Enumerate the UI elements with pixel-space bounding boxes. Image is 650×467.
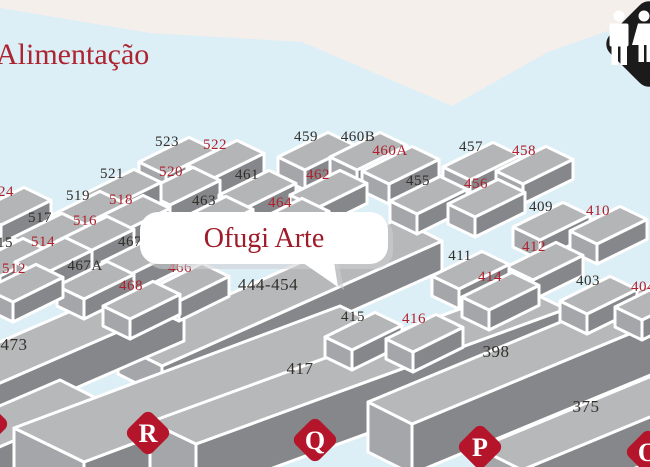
booth-label-520: 520 xyxy=(159,164,183,180)
booth-label-409: 409 xyxy=(529,199,553,215)
block-label-b375: 375 xyxy=(573,397,600,416)
fair-map-canvas: 444-454473417398375459460B52352245745846… xyxy=(0,0,650,467)
aisle-marker-letter: O xyxy=(638,438,650,467)
booth-label-456: 456 xyxy=(464,176,488,192)
booth-label-523: 523 xyxy=(155,134,179,150)
booth-label-516: 516 xyxy=(73,213,97,229)
booth-label-517: 517 xyxy=(28,210,52,226)
booth-label-463: 463 xyxy=(192,193,216,209)
block-label-b417: 417 xyxy=(287,359,314,378)
aisle-marker-letter: R xyxy=(139,419,158,448)
booth-label-521: 521 xyxy=(100,166,124,182)
booth-label-467A: 467A xyxy=(67,258,102,274)
aisle-marker-letter: P xyxy=(472,433,488,462)
booth-label-416: 416 xyxy=(402,311,426,327)
booth-label-457: 457 xyxy=(459,139,483,155)
booth-label-464: 464 xyxy=(268,195,292,211)
booth-label-519: 519 xyxy=(66,188,90,204)
booth-label-455: 455 xyxy=(406,173,430,189)
booth-label-468: 468 xyxy=(119,278,143,294)
booth-label-460B: 460B xyxy=(341,129,376,145)
booth-label-460A: 460A xyxy=(372,143,407,159)
booth-label-414: 414 xyxy=(478,269,502,285)
block-label-b473: 473 xyxy=(1,335,28,354)
booth-label-411: 411 xyxy=(448,248,471,264)
booth-label-522: 522 xyxy=(203,137,227,153)
booth-label-515: 515 xyxy=(0,235,13,251)
aisle-marker-letter: Q xyxy=(305,426,325,455)
booth-label-462: 462 xyxy=(306,167,330,183)
block-label-b398: 398 xyxy=(483,342,510,361)
booth-label-410: 410 xyxy=(586,203,610,219)
booth-label-458: 458 xyxy=(512,143,536,159)
area-label-alimentacao: Alimentação xyxy=(0,38,149,71)
block-label-b444: 444-454 xyxy=(238,275,298,294)
booth-label-518: 518 xyxy=(109,192,133,208)
fair-map: 444-454473417398375459460B52352245745846… xyxy=(0,0,650,467)
booth-label-459: 459 xyxy=(294,129,318,145)
booth-label-514: 514 xyxy=(31,234,55,250)
booth-label-404: 404 xyxy=(631,279,650,295)
booth-label-412: 412 xyxy=(522,239,546,255)
booth-label-512: 512 xyxy=(2,261,26,277)
booth-label-403: 403 xyxy=(576,273,600,289)
tooltip-text: Ofugi Arte xyxy=(204,223,325,254)
booth-label-467: 467 xyxy=(118,234,142,250)
booth-label-524: 524 xyxy=(0,184,14,200)
booth-label-461: 461 xyxy=(235,167,259,183)
booth-label-415: 415 xyxy=(341,309,365,325)
